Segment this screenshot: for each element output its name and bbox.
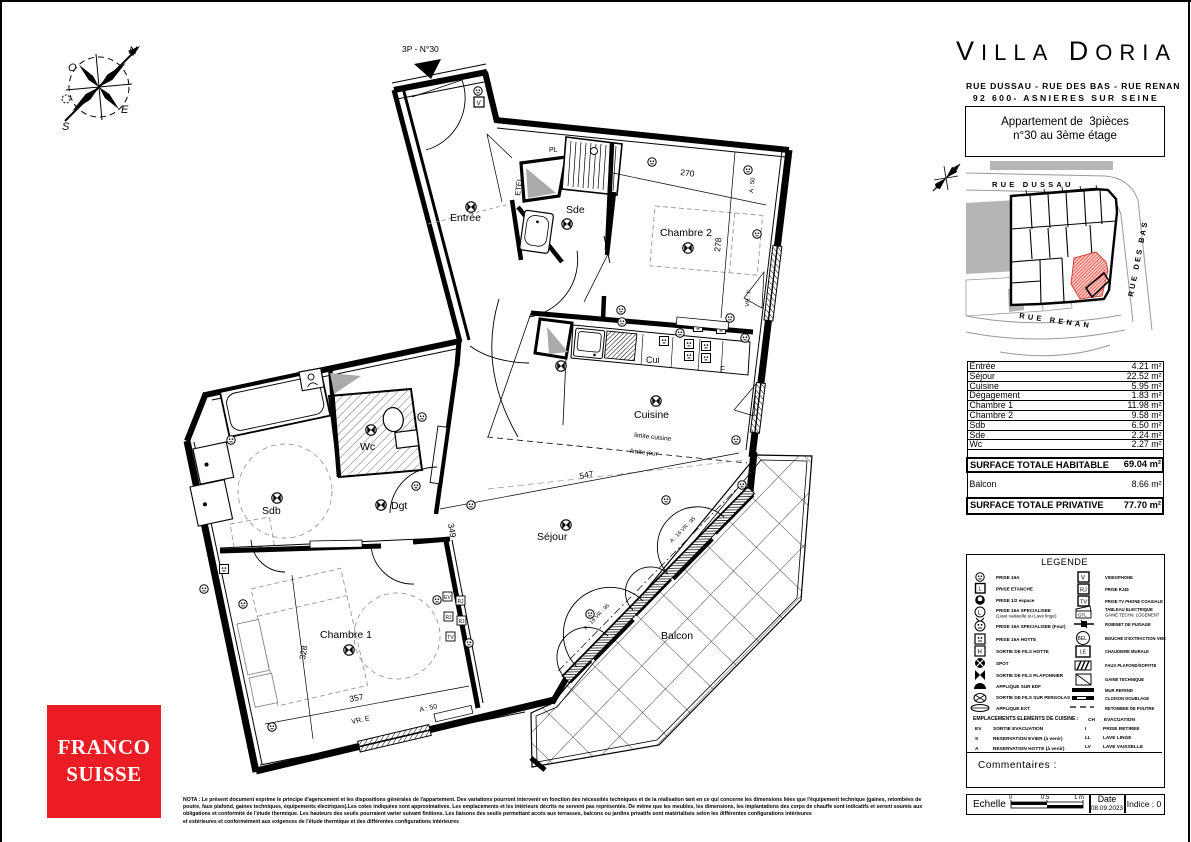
svg-text:LAVE VAISSELLE: LAVE VAISSELLE — [1103, 744, 1144, 750]
svg-text:BEL: BEL — [1078, 636, 1088, 642]
svg-text:0.5: 0.5 — [1041, 795, 1050, 801]
svg-text:SORTIE DE FILS SUR PERGOLAS: SORTIE DE FILS SUR PERGOLAS — [996, 695, 1070, 700]
svg-text:V: V — [1081, 576, 1085, 582]
svg-text:270: 270 — [680, 167, 696, 179]
svg-text:RUE RENAN: RUE RENAN — [1019, 311, 1093, 330]
svg-text:A: A — [975, 746, 979, 752]
svg-text:PRISE ETANCHE: PRISE ETANCHE — [996, 587, 1033, 592]
svg-text:A : 16 VR : 95: A : 16 VR : 95 — [669, 516, 697, 544]
svg-text:TV: TV — [447, 635, 454, 641]
svg-text:VIDEOPHONE: VIDEOPHONE — [1105, 575, 1133, 580]
svg-text:limite cuisine: limite cuisine — [634, 432, 672, 443]
svg-text:Séjour: Séjour — [537, 531, 568, 543]
svg-text:RUE DUSSAU: RUE DUSSAU — [992, 180, 1074, 189]
svg-text:RJ: RJ — [1080, 588, 1087, 594]
svg-text:S: S — [62, 121, 70, 133]
svg-text:SORTIE DE FILS HOTTE: SORTIE DE FILS HOTTE — [996, 649, 1049, 654]
svg-text:Cui: Cui — [646, 355, 660, 365]
svg-text:H: H — [978, 650, 982, 656]
svg-text:F: F — [720, 365, 725, 374]
svg-text:278: 278 — [712, 237, 723, 252]
svg-text:357: 357 — [348, 691, 364, 704]
svg-text:PRISE RJ45: PRISE RJ45 — [1105, 587, 1129, 592]
svg-text:A : 50: A : 50 — [419, 703, 438, 714]
svg-text:(Lave vaisselle ou Lave linge): (Lave vaisselle ou Lave linge) — [996, 614, 1057, 619]
svg-text:APPLIQUE SUR EDF: APPLIQUE SUR EDF — [996, 684, 1041, 689]
svg-text:SORTIE DE FILS PLAFONNIER: SORTIE DE FILS PLAFONNIER — [996, 673, 1064, 678]
svg-text:L: L — [979, 587, 982, 593]
svg-text:VR : F: VR : F — [745, 289, 753, 307]
svg-text:EVACUATION: EVACUATION — [1104, 717, 1136, 723]
svg-text:Dgt: Dgt — [391, 500, 407, 512]
svg-text:CH: CH — [1088, 717, 1095, 723]
svg-text:E: E — [121, 104, 129, 116]
svg-text:EV: EV — [975, 726, 982, 732]
svg-text:PL: PL — [549, 147, 558, 154]
svg-text:PRISE 16A: PRISE 16A — [996, 575, 1020, 580]
svg-text:328: 328 — [297, 644, 309, 660]
svg-text:V: V — [477, 100, 482, 107]
svg-text:LAVE LINGE: LAVE LINGE — [1103, 735, 1132, 741]
svg-text:S: S — [975, 736, 979, 742]
svg-text:LL: LL — [1085, 735, 1091, 741]
svg-text:547: 547 — [578, 468, 594, 481]
svg-text:RETOMBEE DE POUTRE: RETOMBEE DE POUTRE — [1105, 706, 1154, 711]
svg-text:Wc: Wc — [360, 441, 375, 453]
svg-text:EMPLACEMENTS ELEMENTS DE CUISI: EMPLACEMENTS ELEMENTS DE CUISINE : — [973, 716, 1079, 722]
svg-text:LV: LV — [1085, 744, 1092, 750]
svg-text:RESERVATION HOTTE (à venir): RESERVATION HOTTE (à venir) — [993, 746, 1065, 752]
svg-text:CLOISON DOUBLAGE: CLOISON DOUBLAGE — [1105, 696, 1149, 701]
svg-text:GAINE TECHN. LOGEMENT: GAINE TECHN. LOGEMENT — [1105, 613, 1160, 618]
svg-text:FAUX PLAFOND/SOFFITE: FAUX PLAFOND/SOFFITE — [1105, 663, 1157, 668]
svg-text:3P - N°30: 3P - N°30 — [402, 44, 439, 54]
svg-text:TV: TV — [1080, 600, 1087, 606]
svg-text:TABLEAU ELECTRIQUE: TABLEAU ELECTRIQUE — [1105, 607, 1153, 612]
svg-text:RJ: RJ — [445, 615, 452, 621]
svg-text:BOUCHE D'EXTRACTION VMC: BOUCHE D'EXTRACTION VMC — [1105, 636, 1166, 641]
svg-text:1 m: 1 m — [1074, 795, 1084, 801]
svg-text:A : 50: A : 50 — [749, 177, 757, 194]
svg-text:VR. E: VR. E — [351, 715, 371, 726]
svg-text:GAINE TECHNIQUE: GAINE TECHNIQUE — [1105, 677, 1144, 682]
svg-text:N: N — [129, 45, 137, 57]
svg-text:CHAUDIERE MURALE: CHAUDIERE MURALE — [1105, 649, 1149, 654]
svg-text:Balcon: Balcon — [661, 630, 693, 642]
svg-text:Chambre 1: Chambre 1 — [320, 629, 372, 641]
svg-text:I: I — [1085, 726, 1087, 732]
svg-text:EV: EV — [444, 595, 451, 601]
svg-text:Entrée: Entrée — [450, 212, 481, 224]
svg-text:SORTIE EVACUATION: SORTIE EVACUATION — [993, 726, 1044, 732]
svg-text:PRISE TV PHONE COAXIALE: PRISE TV PHONE COAXIALE — [1105, 599, 1163, 604]
svg-text:PRISE 16A SPECIALISEE: PRISE 16A SPECIALISEE — [996, 608, 1051, 613]
svg-text:GTL: GTL — [1078, 613, 1087, 618]
svg-text:Cuisine: Cuisine — [634, 409, 669, 421]
svg-text:PRISE RETIREE: PRISE RETIREE — [1103, 726, 1140, 732]
svg-text:PRISE 1/2 espace: PRISE 1/2 espace — [996, 598, 1035, 603]
svg-text:Chambre 2: Chambre 2 — [660, 227, 712, 239]
svg-text:RJ: RJ — [458, 619, 465, 625]
svg-text:RESERVATION EVIER (à venir): RESERVATION EVIER (à venir) — [993, 736, 1063, 742]
svg-text:349: 349 — [446, 523, 458, 539]
svg-text:PRISE 16A HOTTE: PRISE 16A HOTTE — [996, 637, 1036, 642]
svg-text:limite jour: limite jour — [630, 448, 659, 458]
svg-text:ROBINET DE PUISAGE: ROBINET DE PUISAGE — [1105, 622, 1151, 627]
svg-text:SPOT: SPOT — [996, 661, 1009, 666]
svg-text:LE: LE — [1080, 650, 1087, 656]
svg-text:PRISE 16A SPECIALISEE (Four): PRISE 16A SPECIALISEE (Four) — [996, 624, 1066, 629]
svg-text:MUR REFEND: MUR REFEND — [1105, 688, 1133, 693]
svg-text:Sdb: Sdb — [262, 505, 281, 517]
svg-text:APPLIQUE EXT: APPLIQUE EXT — [996, 706, 1030, 711]
svg-text:RUE DES BAS: RUE DES BAS — [1126, 219, 1150, 297]
svg-text:Sde: Sde — [566, 204, 585, 216]
svg-text:O: O — [68, 62, 77, 74]
svg-text:RJ: RJ — [457, 599, 464, 605]
